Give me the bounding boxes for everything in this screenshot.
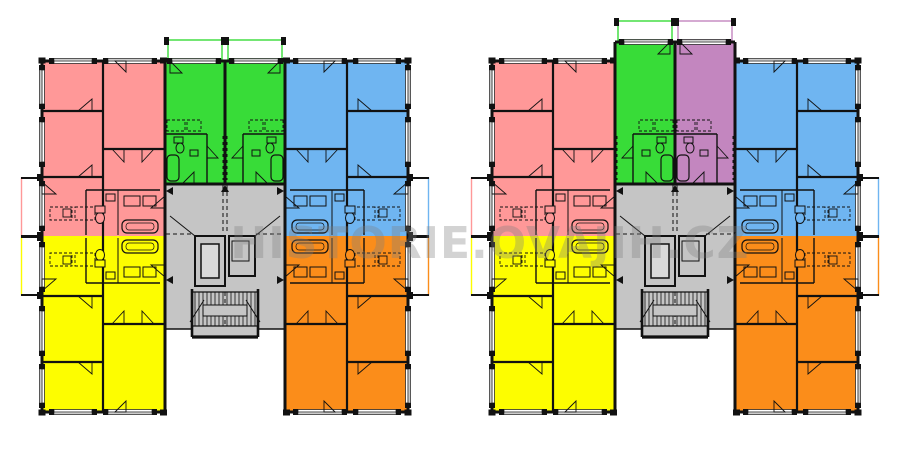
unit-center-left-green: [164, 37, 226, 184]
stair-core: [615, 184, 735, 337]
stair-core: [165, 184, 285, 337]
floor-plan-left: [20, 4, 430, 419]
floor-plan-left-svg: [20, 4, 430, 419]
unit-center-right-green: [224, 37, 286, 184]
unit-top-left-pink: [471, 58, 617, 240]
unit-bottom-right-orange: [733, 234, 879, 416]
unit-top-right-blue: [283, 58, 429, 240]
unit-bottom-left-yellow: [21, 234, 167, 416]
unit-bottom-right-orange: [283, 234, 429, 416]
unit-center-right-purple: [674, 18, 736, 184]
unit-bottom-left-yellow: [471, 234, 617, 416]
floor-plan-right: [470, 4, 880, 419]
floor-plan-right-svg: [470, 4, 880, 419]
unit-top-right-blue: [733, 58, 879, 240]
unit-center-left-green: [614, 18, 676, 184]
unit-top-left-pink: [21, 58, 167, 240]
